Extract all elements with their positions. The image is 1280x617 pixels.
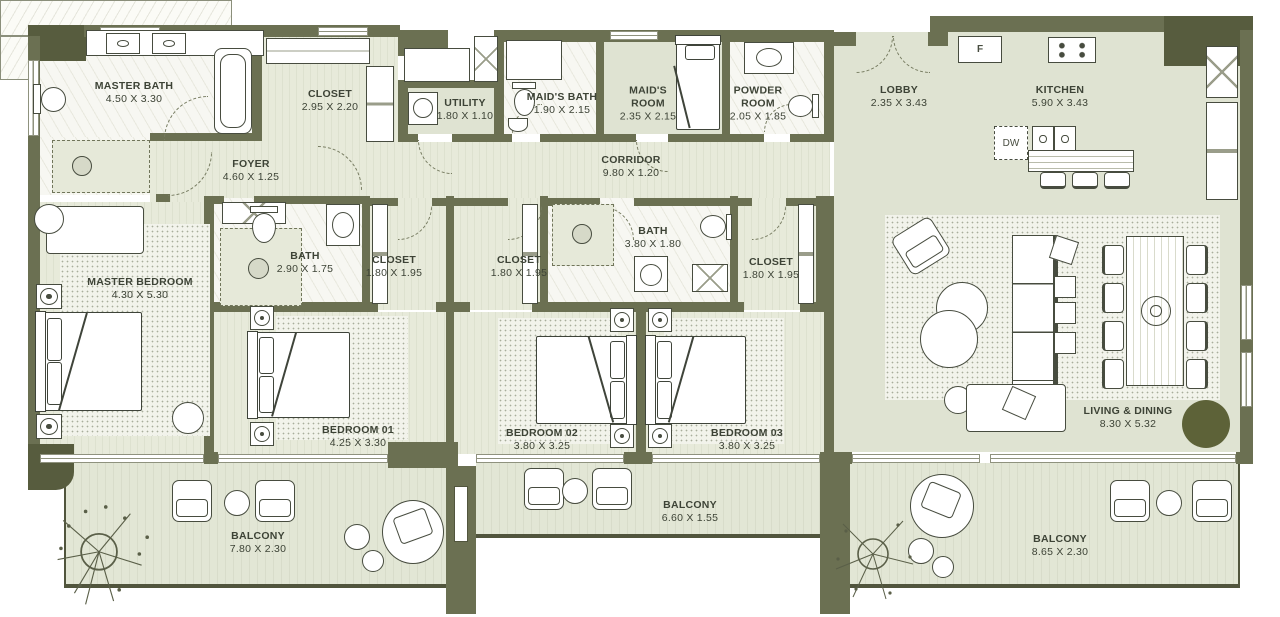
window xyxy=(1241,285,1252,340)
sink xyxy=(106,33,140,54)
room-dims: 2.95 X 2.20 xyxy=(302,101,358,114)
chair xyxy=(1104,172,1130,189)
bed-bedroom-03 xyxy=(646,336,746,424)
room-name: CLOSET xyxy=(743,256,799,269)
room-name: CLOSET xyxy=(491,254,547,267)
room-dims: 4.60 X 1.25 xyxy=(223,171,279,184)
chair xyxy=(1072,172,1098,189)
room-name: UTILITY xyxy=(437,97,493,110)
side-table xyxy=(1054,302,1076,324)
wall-segment xyxy=(816,196,824,310)
room-name: BALCONY xyxy=(230,530,286,543)
chair xyxy=(1040,172,1066,189)
room-label-living-dining: LIVING & DINING 8.30 X 5.32 xyxy=(1084,405,1173,431)
room-dims: 2.05 X 1.85 xyxy=(722,111,794,124)
side-table xyxy=(1156,490,1182,516)
sink xyxy=(332,212,354,238)
nightstand-lamp xyxy=(648,424,672,448)
room-label-utility: UTILITY 1.80 X 1.10 xyxy=(437,97,493,123)
wall-segment xyxy=(204,452,218,464)
room-label-lobby: LOBBY 2.35 X 3.43 xyxy=(871,84,927,110)
dishwasher-label: DW xyxy=(994,126,1028,160)
shower-tray xyxy=(506,40,562,80)
toilet-tank xyxy=(726,214,732,240)
dining-chair xyxy=(1102,283,1124,313)
room-name: FOYER xyxy=(223,158,279,171)
window xyxy=(1241,352,1252,407)
room-name: CORRIDOR xyxy=(601,154,660,167)
room-label-closet-c: CLOSET 1.80 X 1.95 xyxy=(743,256,799,282)
room-label-balcony-left: BALCONY 7.80 X 2.30 xyxy=(230,530,286,556)
bed-bedroom-02 xyxy=(536,336,636,424)
toilet xyxy=(700,215,726,238)
room-label-bedroom-02: BEDROOM 02 3.80 X 3.25 xyxy=(506,427,578,453)
room-dims: 8.65 X 2.30 xyxy=(1032,546,1088,559)
wall-segment xyxy=(668,134,764,142)
room-name: MASTER BATH xyxy=(95,80,173,93)
wall-segment xyxy=(1236,452,1253,464)
dining-chair xyxy=(1186,321,1208,351)
room-dims: 1.80 X 1.95 xyxy=(743,269,799,282)
nightstand-lamp xyxy=(250,422,274,446)
side-table xyxy=(224,490,250,516)
wall-segment xyxy=(398,80,408,142)
room-label-corridor: CORRIDOR 9.80 X 1.20 xyxy=(601,154,660,180)
coffee-table xyxy=(920,310,978,368)
tree-plant xyxy=(828,505,928,613)
armchair xyxy=(255,480,295,522)
room-name: BATH xyxy=(625,225,681,238)
armchair xyxy=(172,480,212,522)
room-dims: 2.35 X 2.15 xyxy=(612,111,684,124)
room-dims: 9.80 X 1.20 xyxy=(601,167,660,180)
room-label-master-bedroom: MASTER BEDROOM 4.30 X 5.30 xyxy=(87,276,193,302)
room-name: BEDROOM 02 xyxy=(506,427,578,440)
shower xyxy=(52,140,150,193)
dining-chair xyxy=(1186,283,1208,313)
room-label-bath-master: BATH 2.90 X 1.75 xyxy=(277,250,333,276)
dining-chair xyxy=(1186,359,1208,389)
room-name: BALCONY xyxy=(662,499,718,512)
room-dims: 4.30 X 5.30 xyxy=(87,289,193,302)
armchair xyxy=(524,468,564,510)
sink xyxy=(640,264,662,286)
nightstand-lamp xyxy=(610,308,634,332)
wall-segment xyxy=(432,198,508,206)
dining-chair xyxy=(1102,321,1124,351)
room-dims: 7.80 X 2.30 xyxy=(230,543,286,556)
room-dims: 3.80 X 3.25 xyxy=(506,440,578,453)
room-label-bedroom-03: BEDROOM 03 3.80 X 3.25 xyxy=(711,427,783,453)
room-label-closet-master: CLOSET 2.95 X 2.20 xyxy=(302,88,358,114)
wall-segment xyxy=(446,310,454,456)
tree-plant xyxy=(52,498,164,610)
wall-segment xyxy=(624,452,652,464)
wall-segment xyxy=(596,30,604,142)
wall-segment xyxy=(928,32,948,46)
nightstand-lamp xyxy=(648,308,672,332)
room-dims: 2.35 X 3.43 xyxy=(871,97,927,110)
armchair xyxy=(592,468,632,510)
nightstand-lamp xyxy=(610,424,634,448)
closet-shelf xyxy=(366,66,394,142)
room-dims: 1.90 X 2.15 xyxy=(526,104,598,117)
room-dims: 6.60 X 1.55 xyxy=(662,512,718,525)
nightstand-lamp xyxy=(36,284,62,309)
toilet xyxy=(41,87,66,112)
planter-box xyxy=(28,444,74,490)
bed-master xyxy=(36,312,142,411)
bathtub-inner xyxy=(220,54,246,128)
room-dims: 8.30 X 5.32 xyxy=(1084,418,1173,431)
room-name: MASTER BEDROOM xyxy=(87,276,193,289)
breakfast-table xyxy=(1028,150,1134,172)
window xyxy=(610,31,658,40)
shower-drain xyxy=(572,224,592,244)
room-dims: 1.80 X 1.95 xyxy=(491,267,547,280)
room-label-bath-shared: BATH 3.80 X 1.80 xyxy=(625,225,681,251)
room-label-balcony-mid: BALCONY 6.60 X 1.55 xyxy=(662,499,718,525)
wall-segment xyxy=(820,452,852,464)
cabinet xyxy=(474,36,498,82)
room-dims: 1.80 X 1.95 xyxy=(366,267,422,280)
window xyxy=(218,454,388,463)
bed-bedroom-01 xyxy=(248,332,350,418)
wall-segment xyxy=(446,196,454,310)
dining-chair xyxy=(1102,359,1124,389)
room-label-closet-b: CLOSET 1.80 X 1.95 xyxy=(491,254,547,280)
side-table xyxy=(562,478,588,504)
wall-segment xyxy=(824,30,834,142)
toilet-tank xyxy=(250,206,278,213)
toilet-tank xyxy=(33,84,41,114)
room-dims: 1.80 X 1.10 xyxy=(437,110,493,123)
room-name: LOBBY xyxy=(871,84,927,97)
room-dims: 4.25 X 3.30 xyxy=(322,437,394,450)
shower-drain xyxy=(72,156,92,176)
room-name: BATH xyxy=(277,250,333,263)
balcony-divider-slot xyxy=(454,486,468,542)
room-name: MAID'S ROOM xyxy=(612,84,684,110)
stool xyxy=(172,402,204,434)
wall-segment xyxy=(824,196,834,462)
room-label-maids-room: MAID'S ROOM 2.35 X 2.15 xyxy=(612,84,684,123)
room-name: KITCHEN xyxy=(1032,84,1088,97)
accent-circle xyxy=(1182,400,1230,448)
nightstand-lamp xyxy=(36,414,62,439)
room-label-closet-a: CLOSET 1.80 X 1.95 xyxy=(366,254,422,280)
wall-segment xyxy=(828,32,856,46)
room-name: LIVING & DINING xyxy=(1084,405,1173,418)
closet-shelf xyxy=(692,264,728,292)
sink xyxy=(1032,126,1054,152)
fridge-label: F xyxy=(958,36,1002,63)
closet-shelf xyxy=(798,204,814,304)
sink xyxy=(152,33,186,54)
window xyxy=(318,27,368,36)
dining-chair xyxy=(1186,245,1208,275)
armchair xyxy=(1110,480,1150,522)
room-name: CLOSET xyxy=(366,254,422,267)
room-label-kitchen: KITCHEN 5.90 X 3.43 xyxy=(1032,84,1088,110)
toilet-tank xyxy=(512,82,536,89)
room-name: POWDER ROOM xyxy=(722,84,794,110)
washer-door xyxy=(413,98,433,118)
plant-pot xyxy=(34,204,64,234)
room-dims: 5.90 X 3.43 xyxy=(1032,97,1088,110)
side-table xyxy=(1054,276,1076,298)
shower-drain xyxy=(248,258,269,279)
room-label-balcony-right: BALCONY 8.65 X 2.30 xyxy=(1032,533,1088,559)
cabinet xyxy=(404,48,470,82)
nightstand-lamp xyxy=(250,306,274,330)
window xyxy=(476,454,624,463)
sink xyxy=(1054,126,1076,152)
toilet-tank xyxy=(812,94,819,118)
pouf xyxy=(932,556,954,578)
wall-segment xyxy=(790,134,832,142)
balcony-divider xyxy=(388,442,458,468)
window xyxy=(990,454,1236,463)
sliding-door xyxy=(852,454,980,463)
cabinet-column xyxy=(1206,102,1238,200)
wall-segment xyxy=(540,134,636,142)
sink xyxy=(508,118,528,132)
sink xyxy=(756,48,782,67)
wall-segment xyxy=(398,134,418,142)
armchair xyxy=(1192,480,1232,522)
room-name: BEDROOM 03 xyxy=(711,427,783,440)
room-name: MAID'S BATH xyxy=(526,91,598,104)
floor-plan: F DW xyxy=(0,0,1280,617)
dining-centerpiece xyxy=(1141,296,1171,326)
dining-chair xyxy=(1102,245,1124,275)
room-label-master-bath: MASTER BATH 4.50 X 3.30 xyxy=(95,80,173,106)
room-label-foyer: FOYER 4.60 X 1.25 xyxy=(223,158,279,184)
room-name: BALCONY xyxy=(1032,533,1088,546)
room-name: BEDROOM 01 xyxy=(322,424,394,437)
window xyxy=(652,454,820,463)
room-dims: 3.80 X 1.80 xyxy=(625,238,681,251)
stove xyxy=(1048,37,1096,63)
side-table xyxy=(1054,332,1076,354)
wall-segment xyxy=(494,134,512,142)
pantry-cabinet xyxy=(1206,46,1238,98)
closet-shelf xyxy=(266,38,370,64)
window xyxy=(40,454,204,463)
room-label-maids-bath: MAID'S BATH 1.90 X 2.15 xyxy=(526,91,598,117)
room-dims: 4.50 X 3.30 xyxy=(95,93,173,106)
room-label-bedroom-01: BEDROOM 01 4.25 X 3.30 xyxy=(322,424,394,450)
room-dims: 3.80 X 3.25 xyxy=(711,440,783,453)
pouf xyxy=(344,524,370,550)
room-name: CLOSET xyxy=(302,88,358,101)
pouf xyxy=(362,550,384,572)
room-label-powder-room: POWDER ROOM 2.05 X 1.85 xyxy=(722,84,794,123)
room-dims: 2.90 X 1.75 xyxy=(277,263,333,276)
